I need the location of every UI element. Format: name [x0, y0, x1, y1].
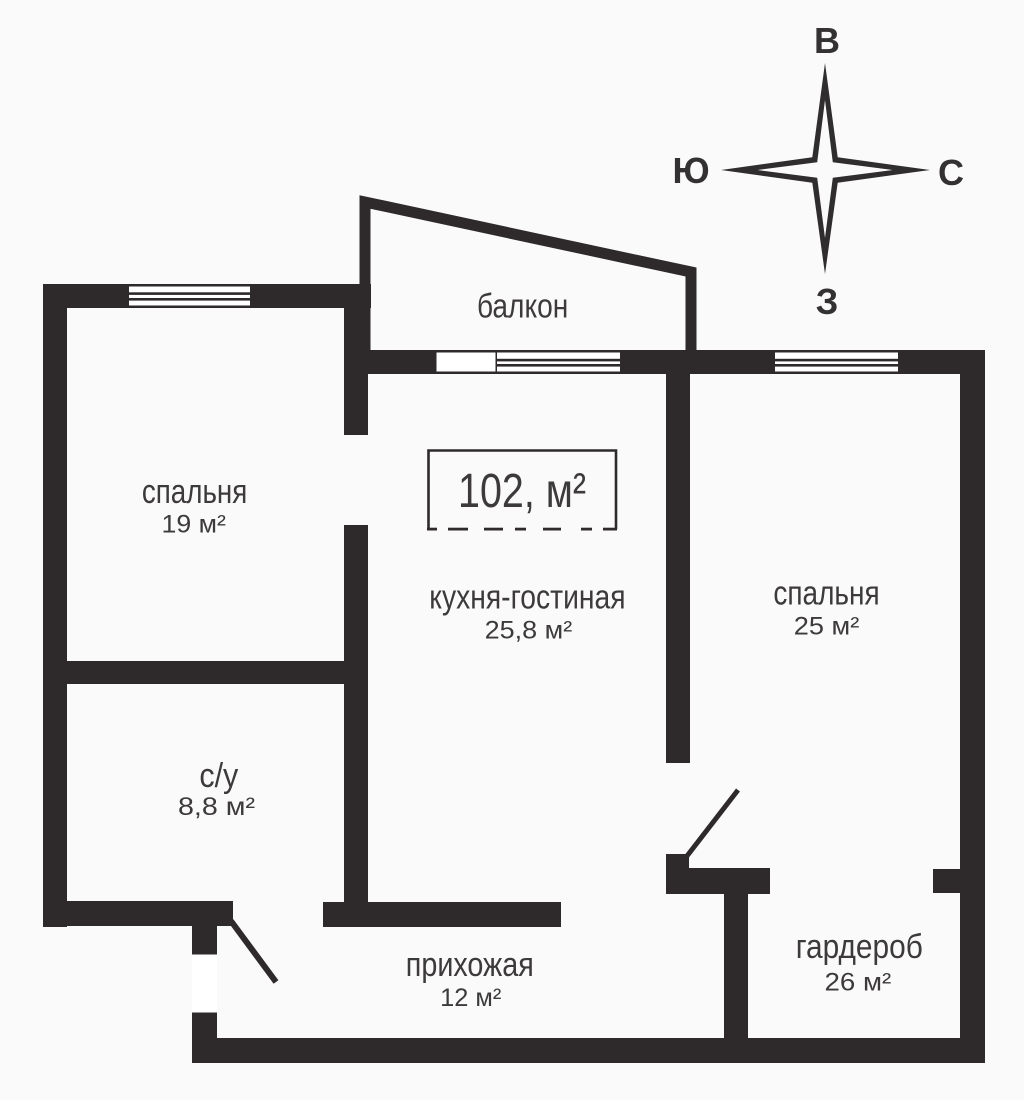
svg-text:З: З	[816, 281, 839, 322]
svg-text:прихожая: прихожая	[406, 946, 534, 984]
svg-text:В: В	[814, 20, 840, 61]
svg-text:8,8 м²: 8,8 м²	[178, 793, 255, 821]
svg-text:с/у: с/у	[199, 757, 238, 795]
svg-text:19 м²: 19 м²	[162, 511, 226, 539]
svg-text:кухня-гостиная: кухня-гостиная	[429, 578, 625, 616]
svg-text:С: С	[938, 152, 964, 193]
svg-text:25 м²: 25 м²	[794, 612, 860, 640]
svg-text:балкон: балкон	[477, 288, 568, 326]
svg-text:спальня: спальня	[142, 473, 247, 511]
svg-text:спальня: спальня	[773, 574, 879, 612]
svg-text:Ю: Ю	[672, 150, 709, 191]
svg-text:26 м²: 26 м²	[825, 969, 892, 997]
svg-text:12 м²: 12 м²	[440, 984, 501, 1012]
svg-text:102, м²: 102, м²	[458, 465, 586, 518]
svg-text:гардероб: гардероб	[796, 928, 923, 966]
svg-text:25,8 м²: 25,8 м²	[485, 617, 573, 645]
